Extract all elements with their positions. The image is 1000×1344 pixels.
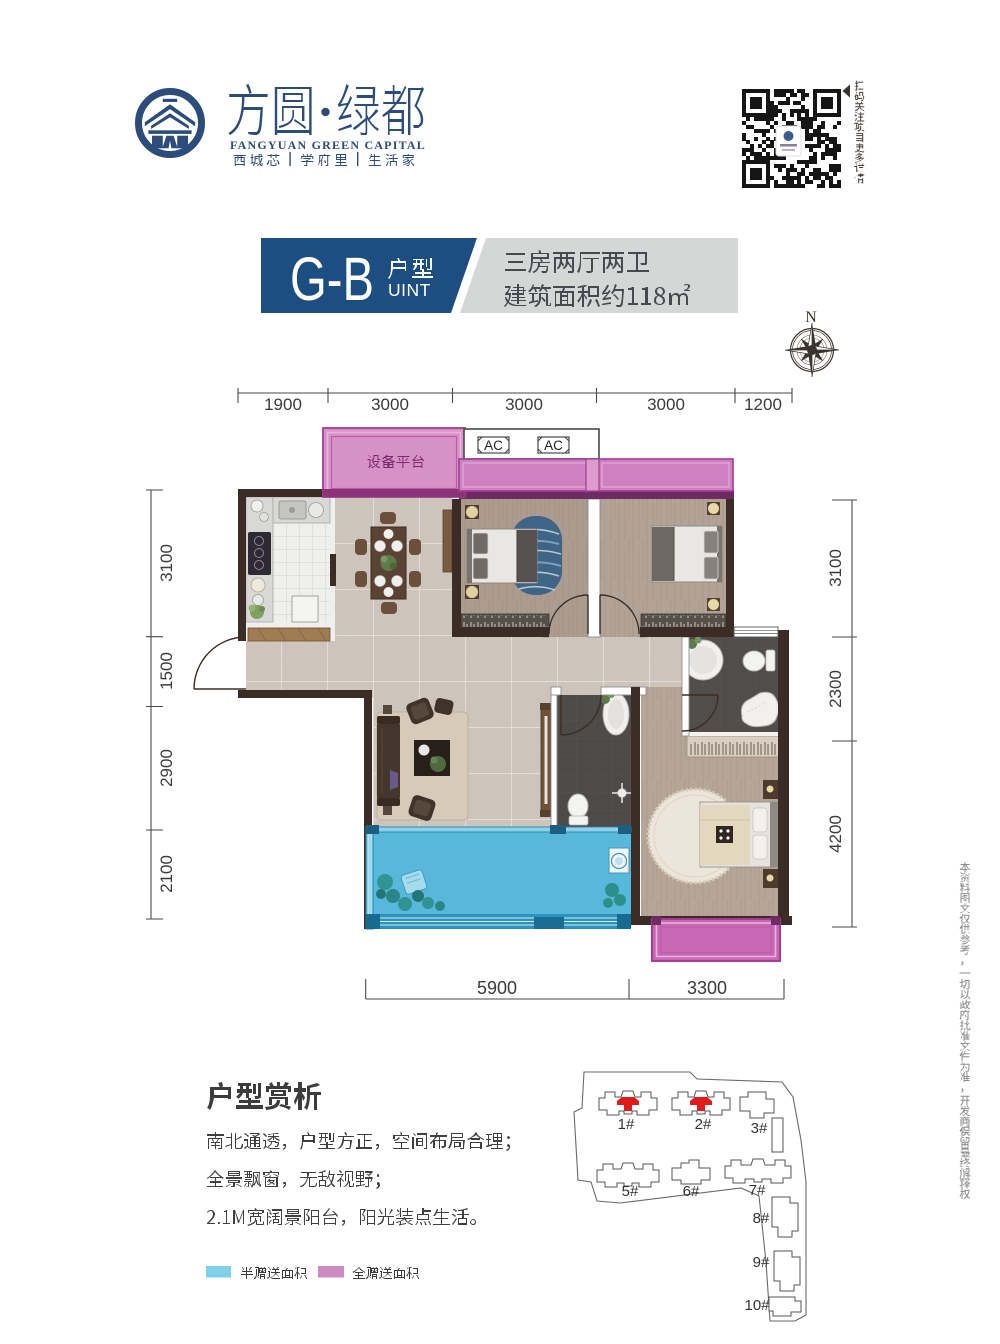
svg-text:2100: 2100 xyxy=(157,855,176,893)
svg-text:9#: 9# xyxy=(753,1254,770,1271)
svg-text:FANGYUAN GREEN CAPITAL: FANGYUAN GREEN CAPITAL xyxy=(230,138,426,152)
svg-text:2#: 2# xyxy=(695,1116,712,1133)
svg-text:AC: AC xyxy=(484,438,503,453)
svg-text:4200: 4200 xyxy=(826,815,845,853)
svg-text:7#: 7# xyxy=(749,1182,766,1199)
svg-text:3#: 3# xyxy=(751,1120,768,1137)
svg-text:3100: 3100 xyxy=(157,544,176,582)
svg-text:3100: 3100 xyxy=(826,549,845,587)
svg-text:2900: 2900 xyxy=(157,749,176,787)
svg-text:1900: 1900 xyxy=(264,395,302,414)
svg-text:3000: 3000 xyxy=(647,395,685,414)
svg-text:8#: 8# xyxy=(753,1210,770,1227)
svg-text:N: N xyxy=(805,309,817,326)
svg-text:UINT: UINT xyxy=(388,280,431,300)
svg-text:3300: 3300 xyxy=(687,978,727,998)
svg-text:3000: 3000 xyxy=(505,395,543,414)
svg-text:3000: 3000 xyxy=(371,395,409,414)
svg-text:2300: 2300 xyxy=(826,670,845,708)
svg-text:1200: 1200 xyxy=(744,395,782,414)
svg-text:10#: 10# xyxy=(744,1297,770,1314)
svg-text:5#: 5# xyxy=(622,1183,639,1200)
svg-text:AC: AC xyxy=(544,438,563,453)
svg-text:G-B: G-B xyxy=(290,245,374,313)
svg-text:1#: 1# xyxy=(618,1116,635,1133)
svg-text:5900: 5900 xyxy=(477,978,517,998)
svg-text:6#: 6# xyxy=(683,1183,700,1200)
svg-text:1500: 1500 xyxy=(157,652,176,690)
